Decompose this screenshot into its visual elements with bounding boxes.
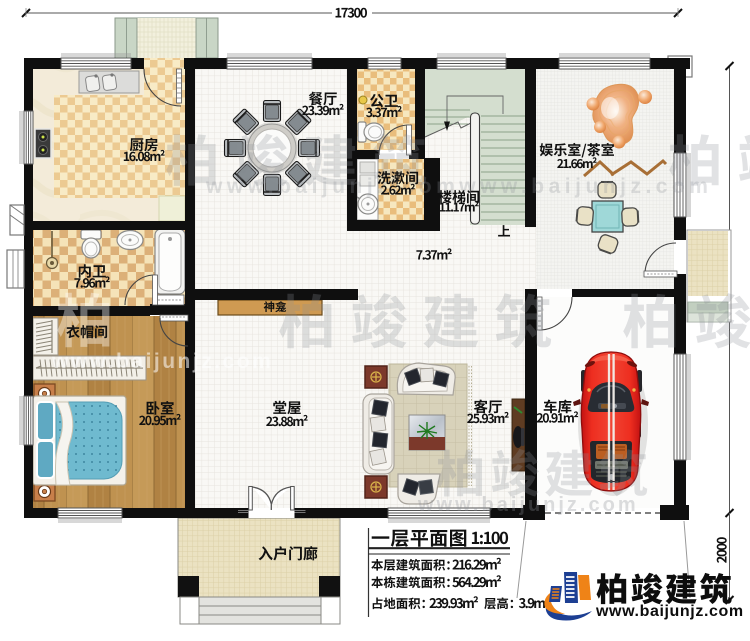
svg-text:www.baijunjz.com: www.baijunjz.com (51, 350, 273, 373)
svg-text:www.baijunjz.com: www.baijunjz.com (595, 603, 744, 620)
svg-text:www.baijunjz.comwww.baijunjz.c: www.baijunjz.comwww.baijunjz.com (205, 175, 712, 198)
svg-text:www.baijunjz.com: www.baijunjz.com (417, 494, 639, 516)
